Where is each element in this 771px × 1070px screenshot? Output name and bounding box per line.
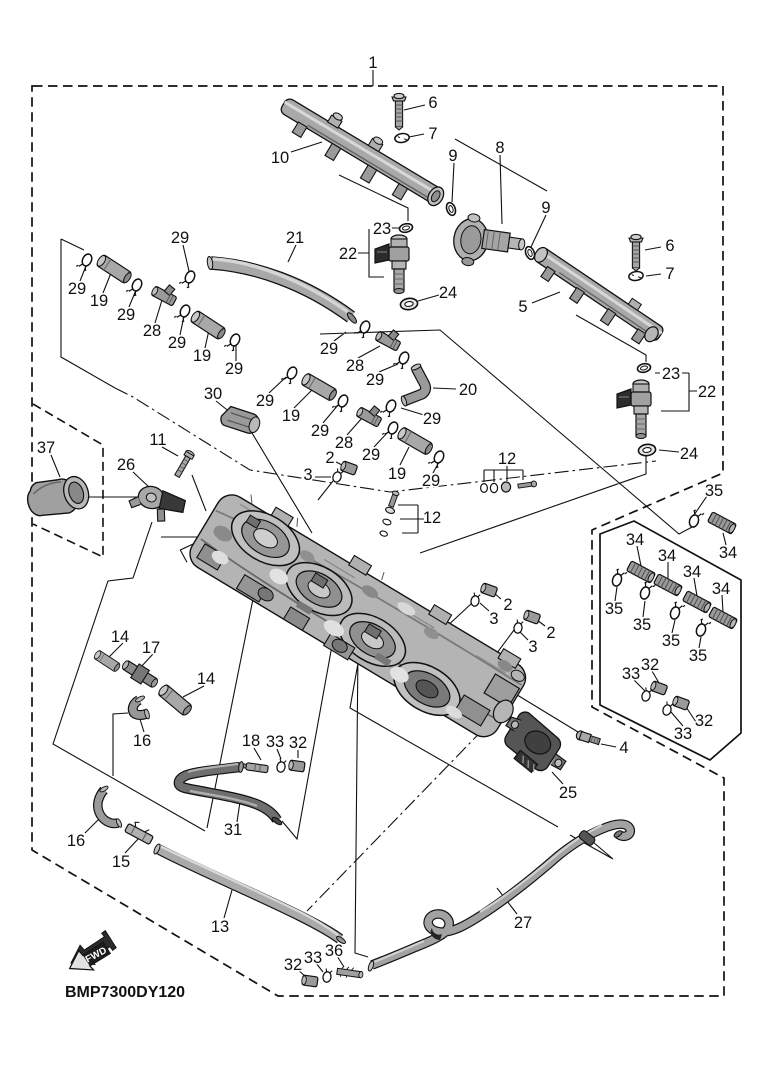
svg-text:22: 22 bbox=[698, 383, 716, 401]
svg-text:32: 32 bbox=[695, 712, 713, 730]
svg-text:28: 28 bbox=[346, 357, 364, 375]
svg-text:13: 13 bbox=[211, 918, 229, 936]
svg-text:21: 21 bbox=[286, 229, 304, 247]
svg-text:34: 34 bbox=[719, 544, 737, 562]
svg-text:35: 35 bbox=[689, 647, 707, 665]
svg-text:29: 29 bbox=[320, 340, 338, 358]
svg-text:29: 29 bbox=[256, 392, 274, 410]
svg-text:34: 34 bbox=[683, 563, 701, 581]
svg-text:35: 35 bbox=[705, 482, 723, 500]
svg-text:37: 37 bbox=[37, 439, 55, 457]
svg-text:29: 29 bbox=[117, 306, 135, 324]
svg-text:7: 7 bbox=[665, 265, 674, 283]
svg-text:2: 2 bbox=[503, 596, 512, 614]
svg-text:19: 19 bbox=[282, 407, 300, 425]
svg-text:18: 18 bbox=[242, 732, 260, 750]
svg-text:32: 32 bbox=[284, 956, 302, 974]
svg-text:14: 14 bbox=[197, 670, 215, 688]
svg-text:29: 29 bbox=[225, 360, 243, 378]
svg-text:29: 29 bbox=[168, 334, 186, 352]
svg-text:15: 15 bbox=[112, 853, 130, 871]
svg-text:19: 19 bbox=[90, 292, 108, 310]
svg-text:16: 16 bbox=[67, 832, 85, 850]
svg-text:30: 30 bbox=[204, 385, 222, 403]
svg-text:2: 2 bbox=[546, 624, 555, 642]
svg-text:35: 35 bbox=[662, 632, 680, 650]
svg-text:29: 29 bbox=[362, 446, 380, 464]
svg-text:7: 7 bbox=[428, 125, 437, 143]
svg-text:23: 23 bbox=[662, 365, 680, 383]
svg-text:3: 3 bbox=[303, 466, 312, 484]
svg-text:12: 12 bbox=[498, 450, 516, 468]
svg-text:29: 29 bbox=[422, 472, 440, 490]
svg-text:1: 1 bbox=[368, 54, 377, 72]
svg-text:2: 2 bbox=[325, 449, 334, 467]
svg-text:27: 27 bbox=[514, 914, 532, 932]
svg-text:34: 34 bbox=[658, 547, 676, 565]
svg-text:22: 22 bbox=[339, 245, 357, 263]
svg-text:6: 6 bbox=[428, 94, 437, 112]
svg-text:29: 29 bbox=[423, 410, 441, 428]
svg-text:35: 35 bbox=[605, 600, 623, 618]
svg-text:23: 23 bbox=[373, 220, 391, 238]
svg-text:10: 10 bbox=[271, 149, 289, 167]
svg-text:29: 29 bbox=[68, 280, 86, 298]
svg-text:8: 8 bbox=[495, 139, 504, 157]
svg-text:17: 17 bbox=[142, 639, 160, 657]
svg-text:12: 12 bbox=[423, 509, 441, 527]
svg-text:29: 29 bbox=[311, 422, 329, 440]
svg-text:32: 32 bbox=[641, 656, 659, 674]
svg-text:36: 36 bbox=[325, 942, 343, 960]
svg-text:3: 3 bbox=[528, 638, 537, 656]
svg-text:20: 20 bbox=[459, 381, 477, 399]
svg-text:3: 3 bbox=[489, 610, 498, 628]
svg-text:29: 29 bbox=[171, 229, 189, 247]
svg-text:5: 5 bbox=[518, 298, 527, 316]
svg-text:28: 28 bbox=[143, 322, 161, 340]
svg-text:24: 24 bbox=[680, 445, 698, 463]
svg-text:9: 9 bbox=[541, 199, 550, 217]
svg-text:24: 24 bbox=[439, 284, 457, 302]
svg-text:14: 14 bbox=[111, 628, 129, 646]
svg-text:19: 19 bbox=[193, 347, 211, 365]
svg-text:16: 16 bbox=[133, 732, 151, 750]
svg-text:25: 25 bbox=[559, 784, 577, 802]
svg-text:29: 29 bbox=[366, 371, 384, 389]
svg-text:19: 19 bbox=[388, 465, 406, 483]
svg-text:34: 34 bbox=[712, 580, 730, 598]
svg-text:BMP7300DY120: BMP7300DY120 bbox=[65, 984, 185, 1001]
svg-text:33: 33 bbox=[622, 665, 640, 683]
svg-text:33: 33 bbox=[304, 949, 322, 967]
svg-text:33: 33 bbox=[266, 733, 284, 751]
svg-text:4: 4 bbox=[619, 739, 628, 757]
svg-text:9: 9 bbox=[448, 147, 457, 165]
svg-text:11: 11 bbox=[149, 431, 166, 449]
svg-text:6: 6 bbox=[665, 237, 674, 255]
svg-text:31: 31 bbox=[224, 821, 242, 839]
svg-text:28: 28 bbox=[335, 434, 353, 452]
svg-text:26: 26 bbox=[117, 456, 135, 474]
svg-text:34: 34 bbox=[626, 531, 644, 549]
svg-text:33: 33 bbox=[674, 725, 692, 743]
svg-text:35: 35 bbox=[633, 616, 651, 634]
svg-text:32: 32 bbox=[289, 734, 307, 752]
